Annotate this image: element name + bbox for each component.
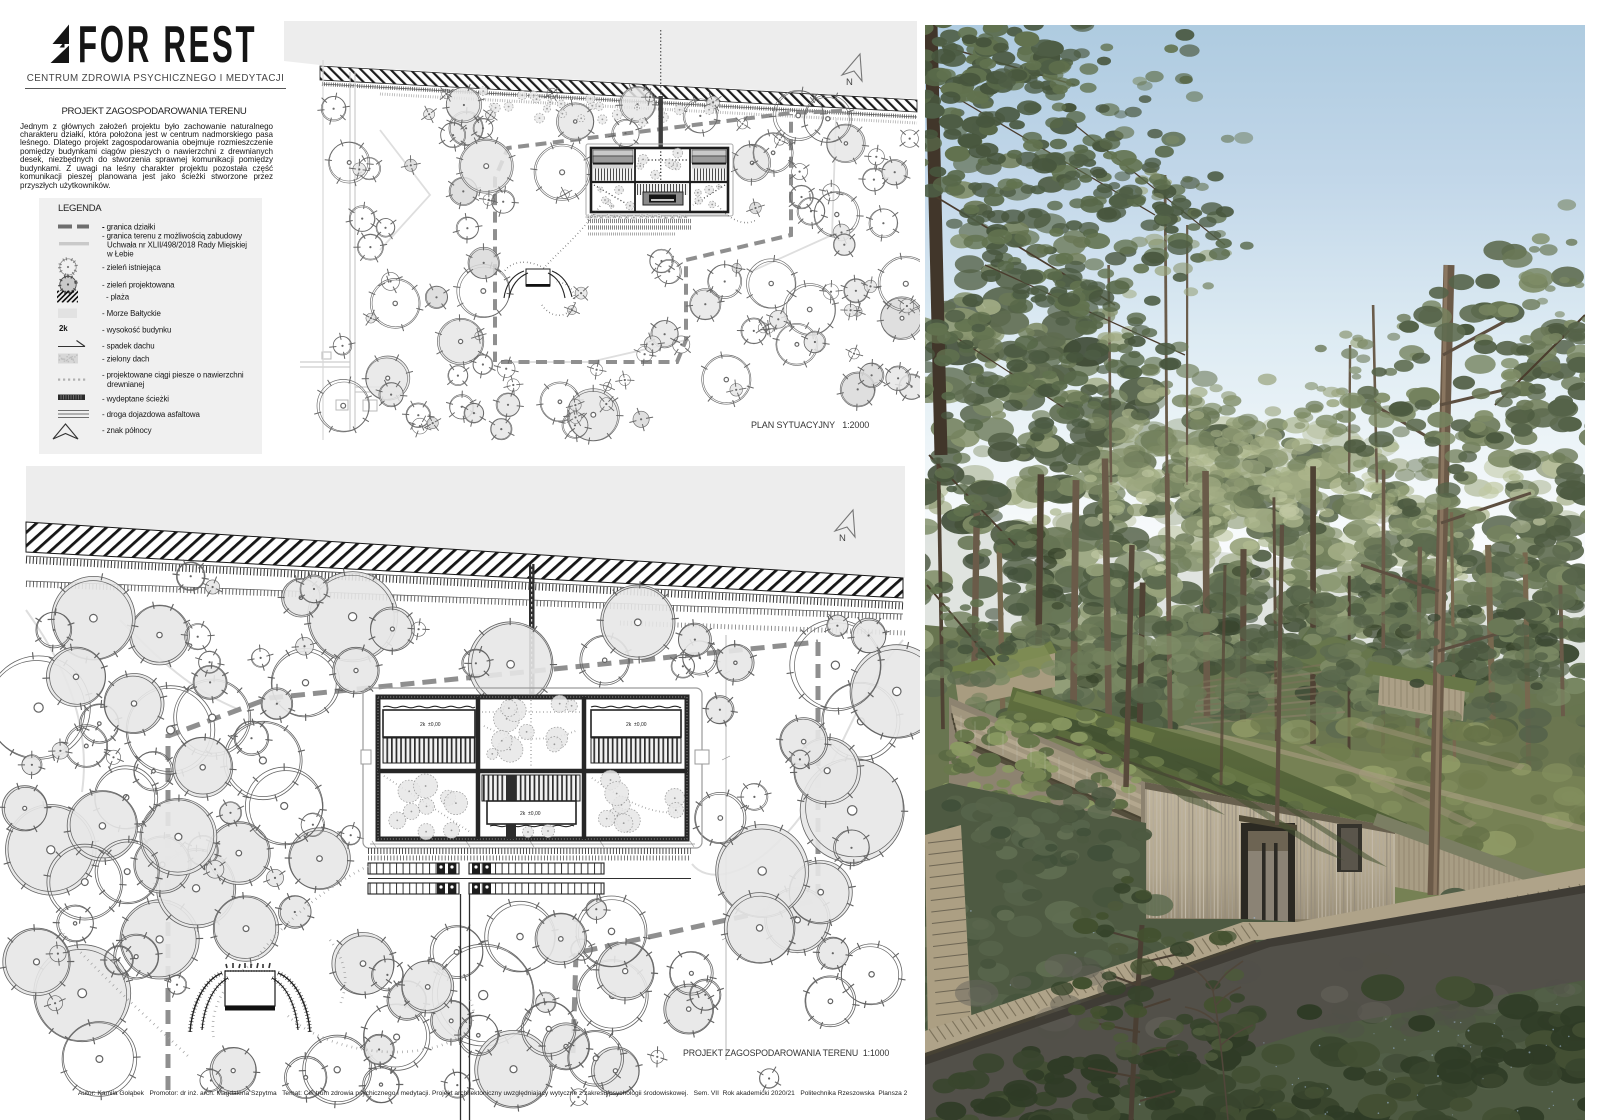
svg-text:- projektowane ciągi piesze o: - projektowane ciągi piesze o nawierzchn…	[102, 371, 244, 380]
svg-text:- droga dojazdowa asfaltowa: - droga dojazdowa asfaltowa	[102, 410, 200, 419]
svg-text:- granica terenu z możliwością: - granica terenu z możliwością zabudowy	[102, 232, 242, 241]
svg-text:- znak północy: - znak północy	[102, 426, 152, 435]
svg-text:2k ±0,00: 2k ±0,00	[626, 722, 647, 728]
svg-text:drewnianej: drewnianej	[107, 380, 145, 389]
svg-text:2k ±0,00: 2k ±0,00	[420, 722, 441, 728]
svg-text:- Morze Bałtyckie: - Morze Bałtyckie	[102, 309, 162, 318]
svg-text:- zieleń istniejąca: - zieleń istniejąca	[102, 263, 161, 272]
svg-text:N: N	[839, 533, 846, 544]
svg-text:N: N	[846, 77, 853, 88]
svg-text:2k ±0,00: 2k ±0,00	[520, 811, 541, 817]
svg-text:Uchwała nr XLII/498/2018 Rady: Uchwała nr XLII/498/2018 Rady Miejskiej	[107, 241, 247, 250]
svg-text:- spadek dachu: - spadek dachu	[102, 342, 155, 351]
svg-text:- wysokość budynku: - wysokość budynku	[102, 326, 171, 335]
svg-text:FOR REST: FOR REST	[78, 16, 257, 72]
svg-text:- wydeptane ścieżki: - wydeptane ścieżki	[102, 395, 169, 404]
svg-text:2k: 2k	[59, 324, 68, 333]
svg-text:- zielony dach: - zielony dach	[102, 355, 149, 364]
svg-text:- zieleń projektowana: - zieleń projektowana	[102, 281, 175, 290]
svg-text:- plaża: - plaża	[106, 293, 130, 302]
svg-text:- granica działki: - granica działki	[102, 223, 155, 232]
svg-text:w Łebie: w Łebie	[106, 250, 134, 259]
